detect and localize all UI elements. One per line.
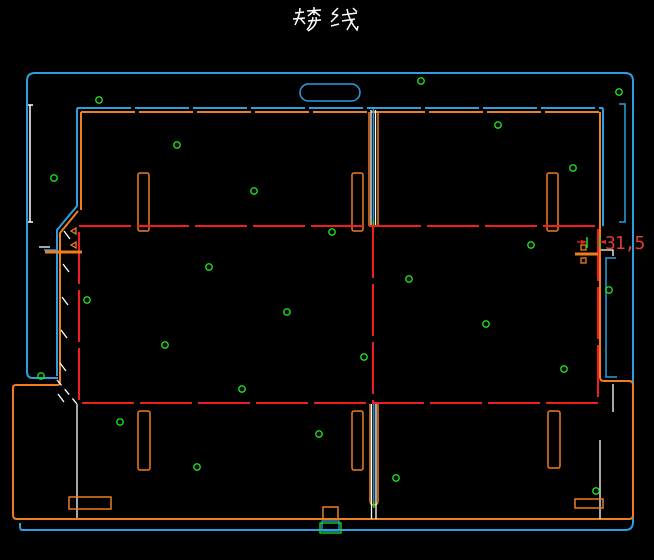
registration-marker[interactable] [561, 366, 567, 372]
registration-marker[interactable] [570, 165, 576, 171]
registration-marker[interactable] [406, 276, 412, 282]
registration-marker[interactable] [51, 175, 57, 181]
registration-marker[interactable] [251, 188, 257, 194]
registration-marker[interactable] [393, 475, 399, 481]
selected-panel-outline[interactable] [79, 226, 598, 403]
registration-markers[interactable] [38, 78, 622, 494]
dimension-text: 31,5 [605, 233, 645, 254]
registration-marker[interactable] [316, 431, 322, 437]
registration-marker[interactable] [284, 309, 290, 315]
registration-marker[interactable] [239, 386, 245, 392]
bottom-flaps[interactable] [69, 250, 613, 519]
registration-marker[interactable] [96, 97, 102, 103]
left-bridge-marks[interactable] [28, 105, 33, 222]
carton-outer-boundary[interactable] [13, 211, 633, 519]
registration-marker[interactable] [206, 264, 212, 270]
registration-marker[interactable] [162, 342, 168, 348]
registration-marker[interactable] [616, 89, 622, 95]
dieboard-frame[interactable] [20, 73, 633, 530]
registration-marker[interactable] [528, 242, 534, 248]
handle-slot[interactable] [300, 84, 360, 101]
right-dust-flap-edge-mid[interactable] [606, 258, 617, 377]
registration-marker[interactable] [329, 229, 335, 235]
bottom-divider-slot[interactable] [370, 404, 378, 519]
bottom-right-slot [575, 499, 603, 508]
register-square-b[interactable] [581, 258, 586, 263]
registration-marker[interactable] [84, 297, 90, 303]
registration-marker[interactable] [418, 78, 424, 84]
flap-bottom-slant [57, 380, 77, 404]
top-slots[interactable] [138, 173, 558, 231]
registration-marker[interactable] [174, 142, 180, 148]
dimension-annotation[interactable]: 31,5 [577, 233, 645, 254]
top-divider-slot[interactable] [369, 108, 378, 227]
registration-marker[interactable] [361, 354, 367, 360]
top-fold-lines[interactable] [57, 108, 603, 376]
register-square-a[interactable] [581, 245, 586, 250]
dieline-drawing: 31,5 [0, 0, 654, 560]
registration-marker[interactable] [606, 287, 612, 293]
registration-marker[interactable] [483, 321, 489, 327]
flap-arrow-marks [71, 228, 76, 248]
dim-arrow-left [581, 240, 587, 244]
registration-marker[interactable] [593, 488, 599, 494]
registration-marker[interactable] [117, 419, 123, 425]
cad-drawing-canvas: 矮线 [0, 0, 654, 560]
registration-marker[interactable] [194, 464, 200, 470]
registration-marker[interactable] [495, 122, 501, 128]
right-dust-flap-edge-top[interactable] [619, 104, 625, 222]
bottom-left-slot [69, 497, 111, 509]
